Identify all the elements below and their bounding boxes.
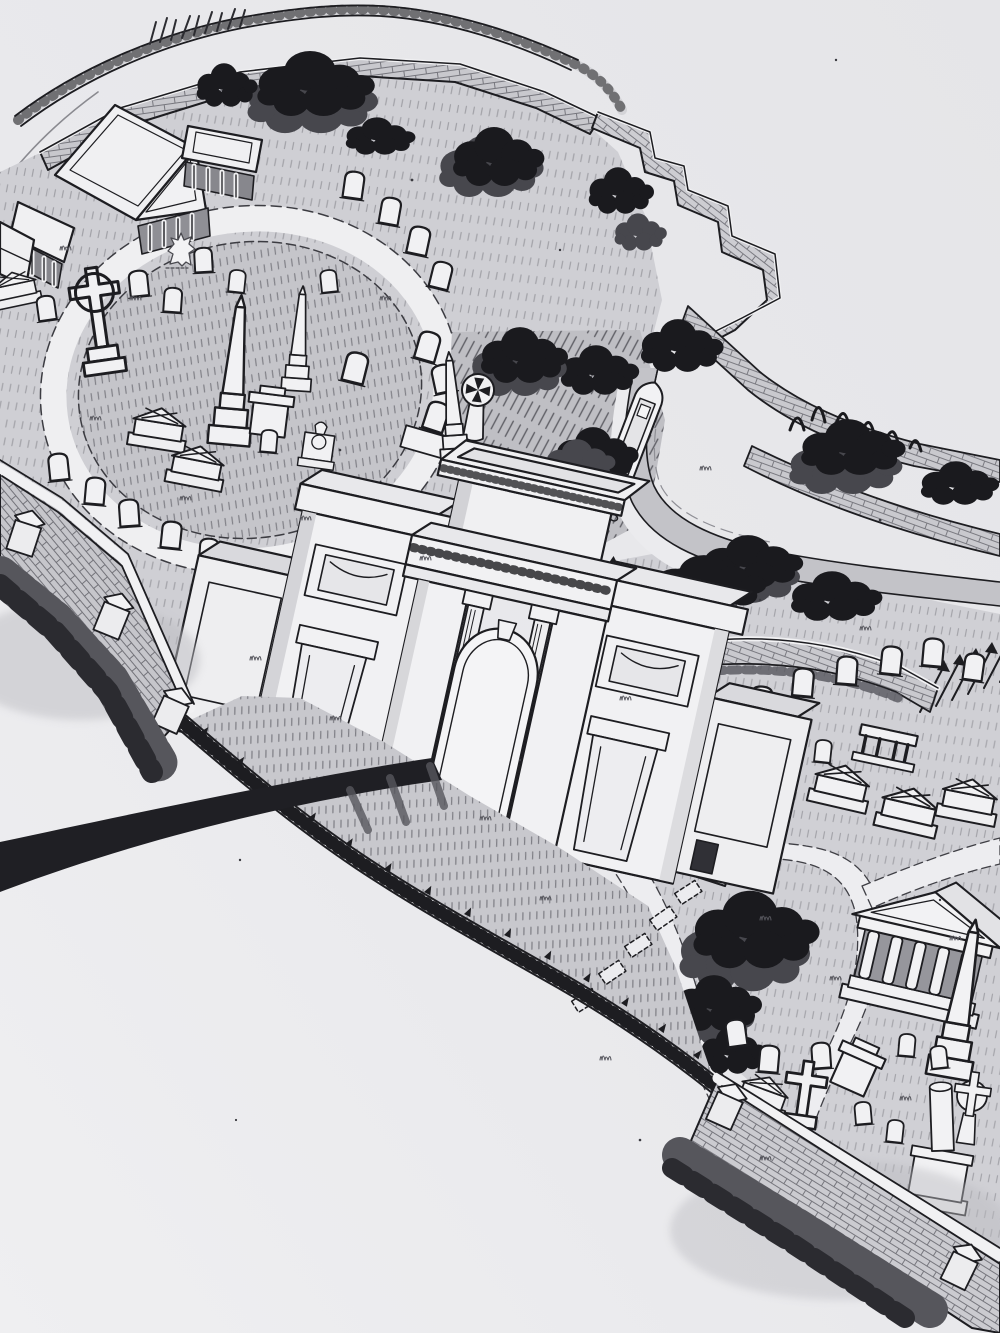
chapel-colonnade-east	[182, 126, 262, 200]
ink-illustration-cemetery-map	[0, 0, 1000, 1333]
illustration-canvas	[0, 0, 1000, 1333]
